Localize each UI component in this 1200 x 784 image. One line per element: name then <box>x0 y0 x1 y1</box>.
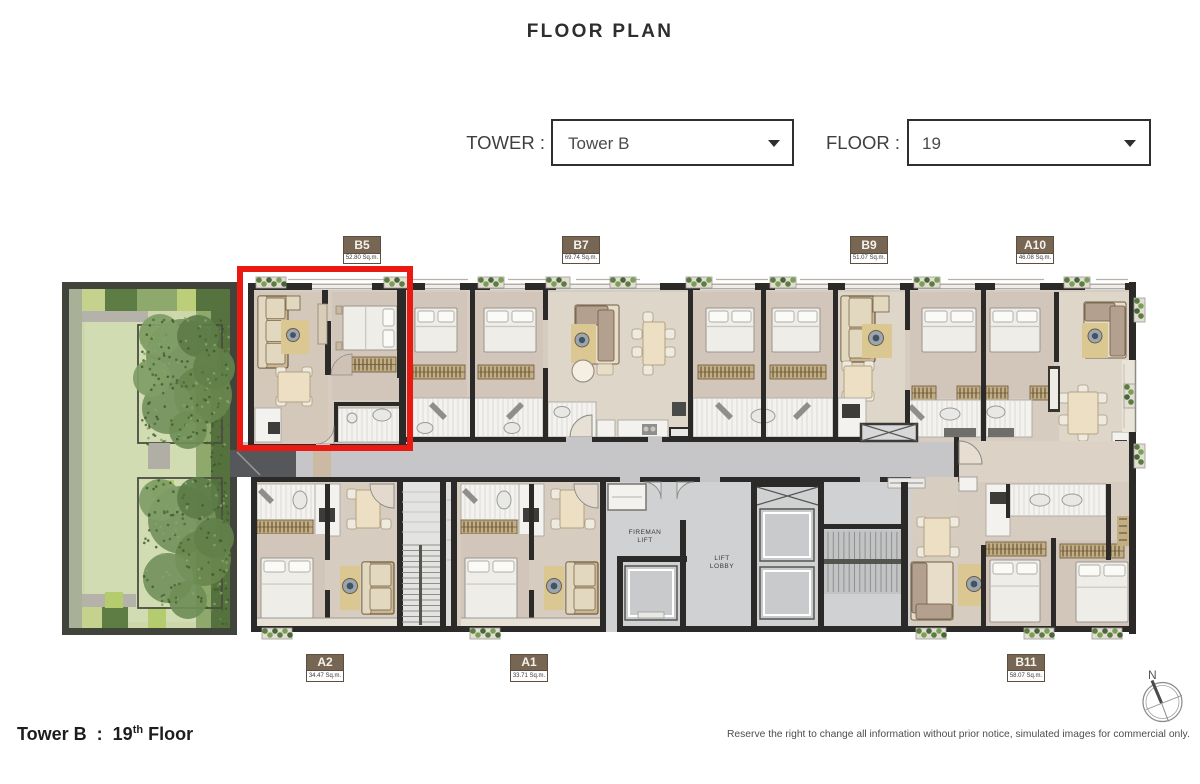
svg-text:LIFT: LIFT <box>637 537 652 544</box>
svg-text:LOBBY: LOBBY <box>710 563 734 570</box>
svg-text:FIREMAN: FIREMAN <box>629 529 662 536</box>
svg-text:LIFT: LIFT <box>714 555 729 562</box>
svg-text:N: N <box>1148 668 1157 682</box>
